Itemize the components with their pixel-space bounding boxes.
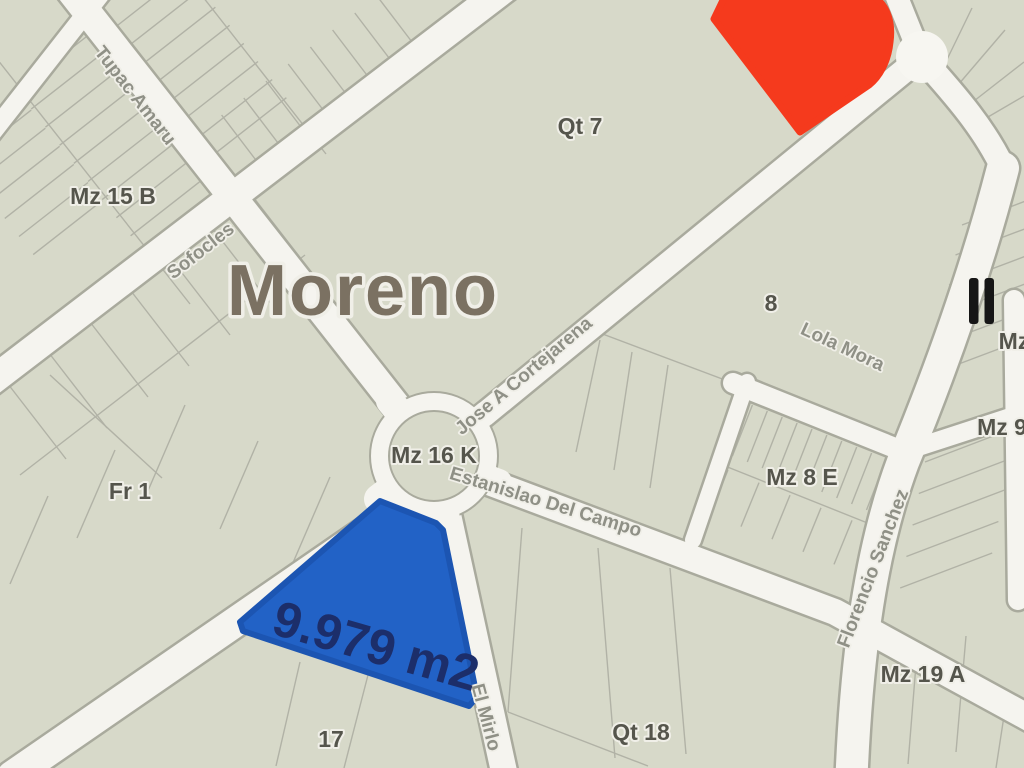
block-label-qt7: Qt 7	[558, 113, 603, 139]
block-label-mz19a: Mz 19 A	[881, 661, 966, 687]
block-label-mz15b: Mz 15 B	[70, 183, 156, 209]
block-label-mz8e: Mz 8 E	[766, 464, 838, 490]
poi-bar-right	[985, 278, 995, 324]
roundabout-leg	[379, 483, 400, 499]
street-junction[interactable]	[896, 31, 948, 83]
block-label-fr1: Fr 1	[109, 478, 151, 504]
block-label-mz-partial: Mz	[999, 328, 1024, 354]
poi-bar-left	[969, 278, 979, 324]
block-label-mz16k: Mz 16 K	[391, 442, 477, 468]
block-label-8: 8	[765, 290, 778, 316]
map-viewport[interactable]: Moreno Qt 7 Mz 15 B Mz 16 K Fr 1 8 Mz 8 …	[0, 0, 1024, 768]
map-canvas[interactable]: Moreno Qt 7 Mz 15 B Mz 16 K Fr 1 8 Mz 8 …	[0, 0, 1024, 768]
block-label-17: 17	[318, 726, 344, 752]
city-label: Moreno	[227, 251, 499, 331]
roundabout-leg	[443, 498, 448, 524]
block-label-qt18: Qt 18	[612, 719, 670, 745]
block-label-mz9: Mz 9	[977, 414, 1024, 440]
